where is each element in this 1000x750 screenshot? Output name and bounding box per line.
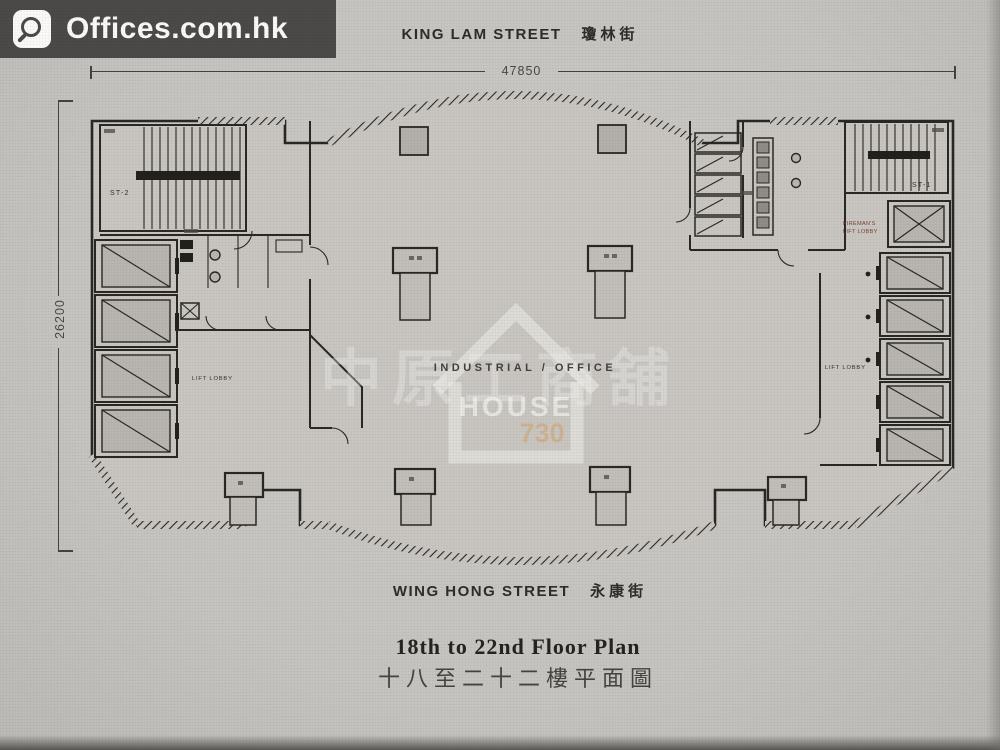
lift-shaft: [876, 296, 950, 336]
lift-shaft: [95, 295, 179, 347]
logo-bar[interactable]: Offices.com.hk: [0, 0, 336, 58]
street-bottom-zh: 永康街: [590, 583, 647, 600]
stair-right-label: ST-1: [912, 182, 932, 189]
lift-shaft: [876, 382, 950, 422]
street-label-bottom: WING HONG STREET永康街: [90, 580, 950, 601]
lift-lobby-right-label: LIFT LOBBY: [825, 365, 866, 371]
fireman-lift: [888, 201, 950, 247]
page: KING LAM STREET瓊林街 Offices.com.hk 47850 …: [0, 0, 1000, 750]
dim-tick-left: [90, 66, 92, 79]
magnifier-handle: [17, 33, 27, 43]
street-top-zh: 瓊林街: [581, 26, 638, 43]
lift-shaft: [95, 405, 179, 457]
dim-line-bottom: [58, 348, 59, 552]
lift-lobby-left-label: LIFT LOBBY: [192, 376, 233, 382]
dimension-width: 47850: [90, 64, 956, 80]
stair-left-label: ST-2: [110, 190, 130, 197]
lift-shaft: [876, 339, 950, 379]
dim-tick-right: [954, 66, 956, 79]
dimension-width-value: 47850: [485, 64, 558, 78]
lift-shaft: [95, 240, 179, 292]
floor-plan-drawing: ST-2 LIFT LOBBY: [80, 83, 960, 568]
lift-shaft: [876, 253, 950, 293]
street-bottom-en: WING HONG STREET: [393, 583, 570, 600]
duct-column: [395, 469, 435, 525]
duct-column: [225, 473, 263, 525]
logo-text: Offices.com.hk: [66, 12, 288, 46]
street-top-en: KING LAM STREET: [401, 26, 561, 43]
floor-plan-title-en: 18th to 22nd Floor Plan: [36, 634, 1000, 660]
floor-plan-title-zh: 十八至二十二樓平面圖: [36, 661, 1000, 693]
photo-edge-bottom: [0, 735, 1000, 750]
dim-tick-bottom: [58, 550, 73, 552]
column: [598, 125, 626, 153]
lift-shaft: [95, 350, 179, 402]
duct-column: [588, 246, 632, 318]
magnifier-icon: [13, 10, 51, 48]
dim-line-top: [58, 100, 59, 296]
dim-tick-top: [58, 100, 73, 102]
lift-shaft: [876, 425, 950, 465]
duct-column: [590, 467, 630, 525]
dimension-depth-value: 26200: [53, 299, 67, 339]
fireman-lobby-label-1: FIREMAN'S: [843, 221, 876, 227]
dimension-depth: 26200: [50, 100, 68, 552]
dim-line-left: [90, 71, 485, 72]
dim-line-right: [558, 71, 956, 72]
duct-column: [393, 248, 437, 320]
column: [400, 127, 428, 155]
fireman-lobby-label-2: LIFT LOBBY: [843, 229, 878, 235]
plan-outline: [92, 95, 953, 561]
